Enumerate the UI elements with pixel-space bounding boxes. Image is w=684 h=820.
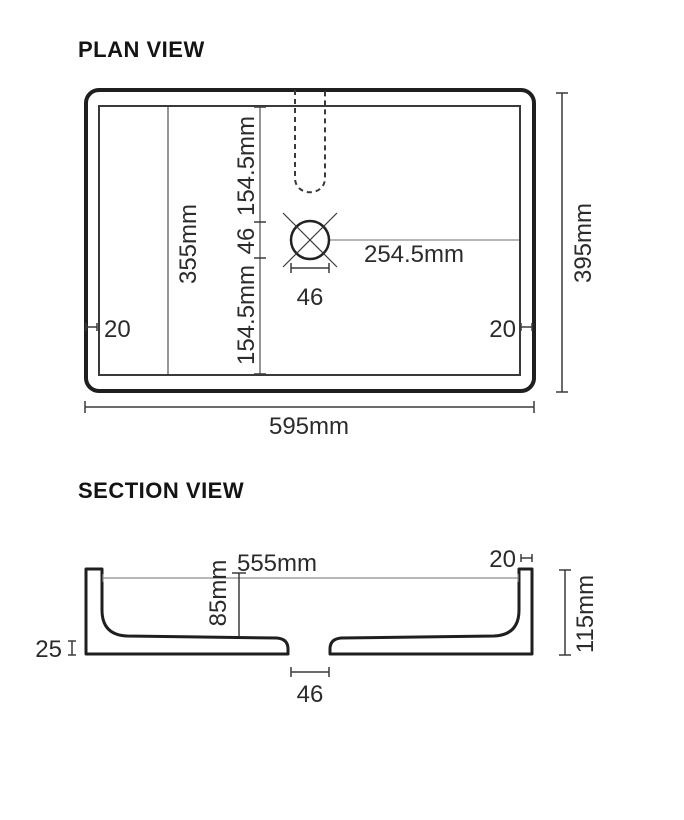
plan-label-overall-depth: 395mm (570, 203, 597, 283)
plan-label-drain-offset-top: 154.5mm (233, 116, 260, 216)
plan-label-drain-to-wall: 254.5mm (364, 241, 464, 268)
plan-label-overall-width: 595mm (269, 413, 349, 440)
plan-label-drain-width: 46 (297, 284, 324, 311)
drawing-canvas: PLAN VIEW 355mm 154.5mm 46 154.5mm 254.5… (0, 0, 684, 820)
section-label-base-thickness: 25 (35, 636, 62, 663)
section-label-bowl-depth: 85mm (205, 560, 232, 627)
section-view-title: SECTION VIEW (78, 478, 244, 503)
section-label-wall-thickness: 20 (489, 546, 516, 573)
plan-label-wall-right: 20 (489, 316, 516, 343)
technical-drawing-page: PLAN VIEW 355mm 154.5mm 46 154.5mm 254.5… (0, 0, 684, 820)
plan-label-inner-length: 355mm (175, 204, 202, 284)
section-label-drain-width: 46 (297, 681, 324, 708)
section-profile-right (330, 569, 532, 654)
plan-label-drain-gap: 46 (233, 228, 260, 255)
plan-label-wall-left: 20 (104, 316, 131, 343)
section-label-overall-height: 115mm (572, 575, 599, 653)
plan-view-title: PLAN VIEW (78, 37, 205, 62)
section-label-inner-width: 555mm (237, 550, 317, 577)
plan-label-drain-offset-bottom: 154.5mm (233, 265, 260, 365)
section-profile-left (86, 569, 288, 654)
